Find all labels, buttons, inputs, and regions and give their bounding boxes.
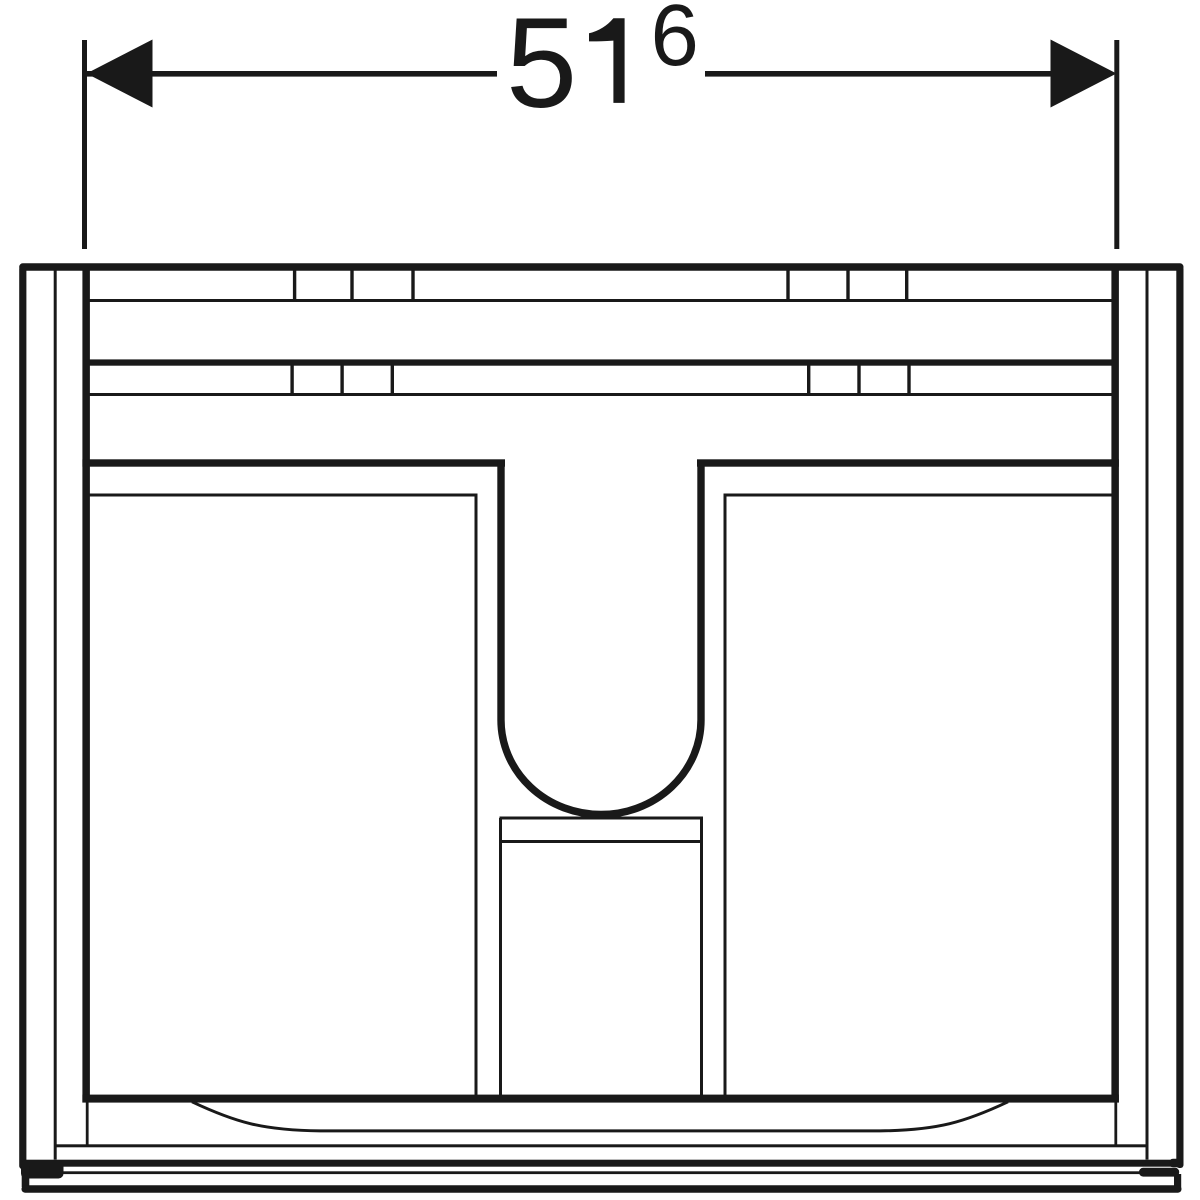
svg-text:6: 6 [651, 0, 699, 84]
svg-text:5: 5 [506, 0, 577, 135]
